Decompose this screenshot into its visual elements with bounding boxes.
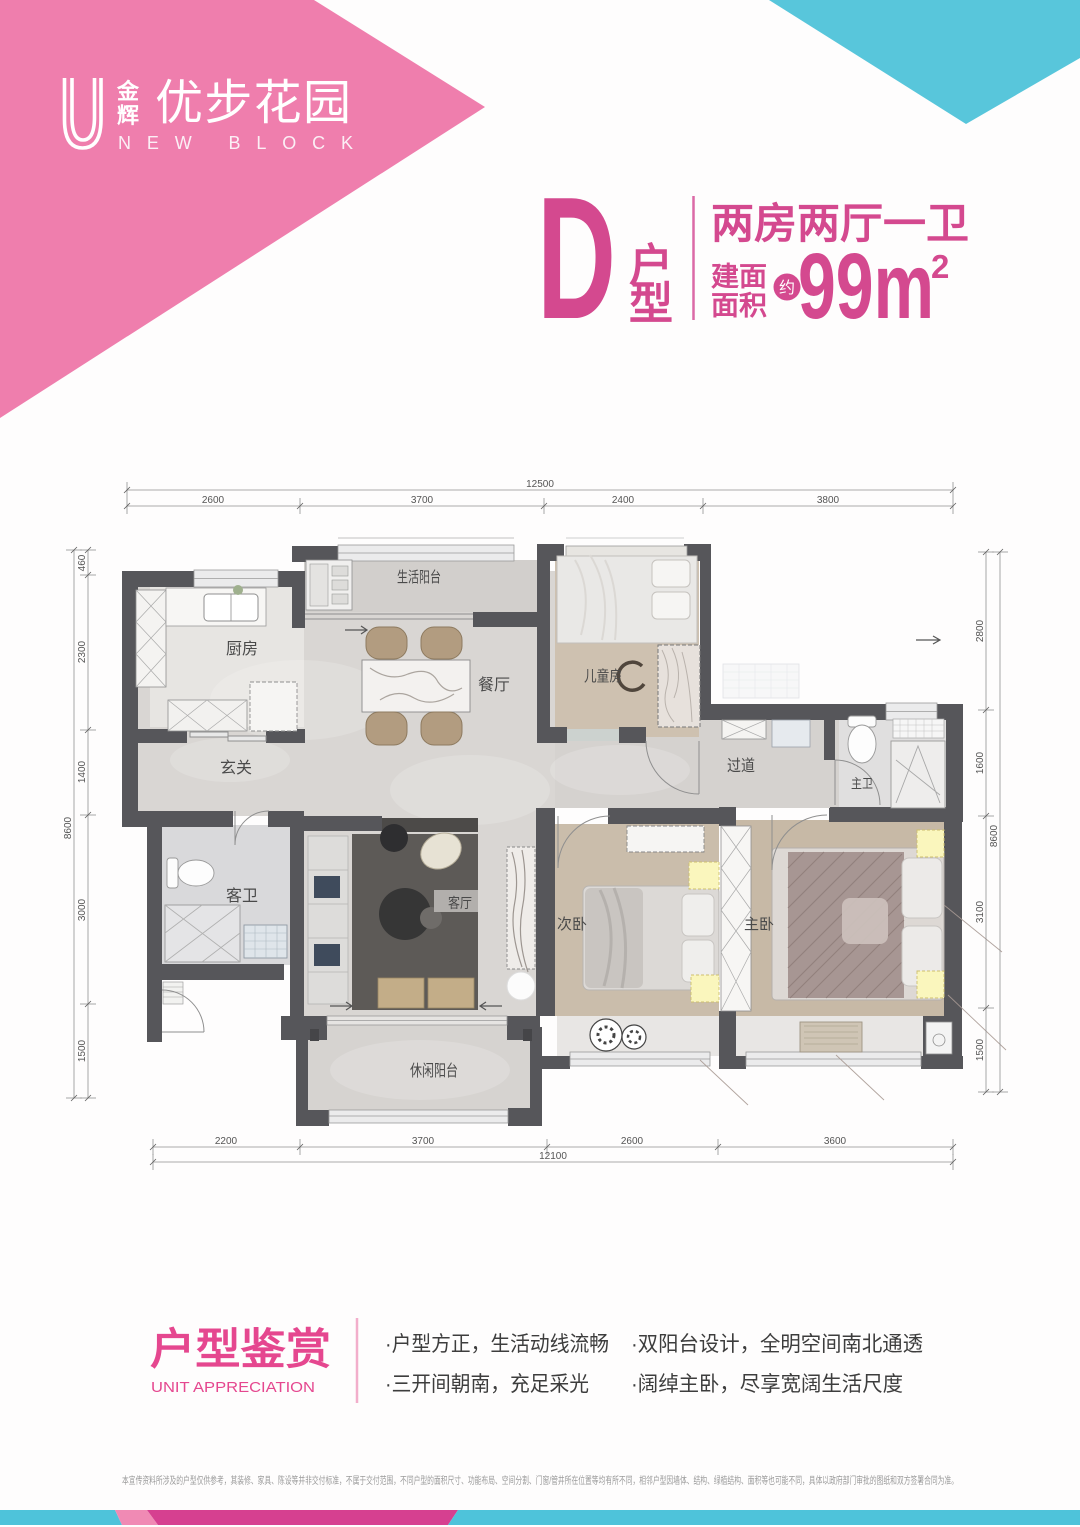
svg-text:3000: 3000 [77, 898, 88, 921]
svg-text:·三开间朝南，充足采光: ·三开间朝南，充足采光 [385, 1373, 589, 1396]
svg-text:3700: 3700 [411, 495, 434, 506]
svg-text:本宣传资料所涉及的户型仅供参考，其装修、家具、陈设等并非交付: 本宣传资料所涉及的户型仅供参考，其装修、家具、陈设等并非交付标准，不属于交付范围… [122, 1474, 958, 1487]
svg-text:3600: 3600 [824, 1136, 847, 1147]
svg-text:3700: 3700 [412, 1136, 435, 1147]
svg-text:1500: 1500 [975, 1038, 986, 1061]
svg-text:8600: 8600 [989, 824, 1000, 847]
svg-text:餐厅: 餐厅 [478, 676, 510, 694]
svg-text:次卧: 次卧 [557, 916, 587, 933]
svg-text:厨房: 厨房 [226, 640, 258, 658]
svg-text:主卧: 主卧 [744, 916, 774, 933]
svg-text:2200: 2200 [215, 1136, 238, 1147]
svg-text:2: 2 [931, 248, 949, 285]
svg-text:D: D [537, 160, 616, 355]
svg-text:客厅: 客厅 [448, 895, 472, 911]
svg-text:过道: 过道 [727, 757, 755, 775]
svg-text:优步花园: 优步花园 [155, 77, 351, 130]
svg-text:·户型方正，生活动线流畅: ·户型方正，生活动线流畅 [385, 1333, 609, 1356]
svg-text:生活阳台: 生活阳台 [397, 569, 441, 586]
svg-text:休闲阳台: 休闲阳台 [410, 1062, 458, 1080]
svg-text:金: 金 [116, 79, 140, 104]
svg-text:99m: 99m [798, 234, 934, 338]
svg-text:主卫: 主卫 [851, 776, 873, 791]
svg-text:2300: 2300 [77, 640, 88, 663]
svg-text:UNIT APPRECIATION: UNIT APPRECIATION [151, 1379, 315, 1396]
svg-text:户型鉴赏: 户型鉴赏 [150, 1326, 331, 1374]
svg-text:玄关: 玄关 [220, 759, 252, 777]
svg-text:460: 460 [77, 554, 88, 571]
svg-text:面积: 面积 [711, 291, 767, 321]
svg-text:12100: 12100 [539, 1151, 567, 1162]
svg-text:3100: 3100 [975, 900, 986, 923]
svg-text:1500: 1500 [77, 1039, 88, 1062]
svg-text:8600: 8600 [63, 816, 74, 839]
svg-text:约: 约 [779, 279, 795, 297]
svg-text:·双阳台设计，全明空间南北通透: ·双阳台设计，全明空间南北通透 [631, 1333, 923, 1356]
svg-text:建面: 建面 [711, 262, 767, 292]
svg-text:12500: 12500 [526, 479, 554, 490]
svg-text:2600: 2600 [621, 1136, 644, 1147]
svg-text:2400: 2400 [612, 495, 635, 506]
svg-text:型: 型 [629, 278, 673, 329]
svg-text:辉: 辉 [117, 103, 139, 128]
svg-text:·阔绰主卧，尽享宽阔生活尺度: ·阔绰主卧，尽享宽阔生活尺度 [631, 1373, 903, 1396]
svg-text:客卫: 客卫 [226, 887, 258, 905]
svg-text:1600: 1600 [975, 751, 986, 774]
svg-text:NEW BLOCK: NEW BLOCK [118, 133, 353, 153]
svg-text:2600: 2600 [202, 495, 225, 506]
svg-text:儿童房: 儿童房 [584, 667, 622, 685]
svg-text:2800: 2800 [975, 619, 986, 642]
svg-text:3800: 3800 [817, 495, 840, 506]
svg-text:1400: 1400 [77, 760, 88, 783]
